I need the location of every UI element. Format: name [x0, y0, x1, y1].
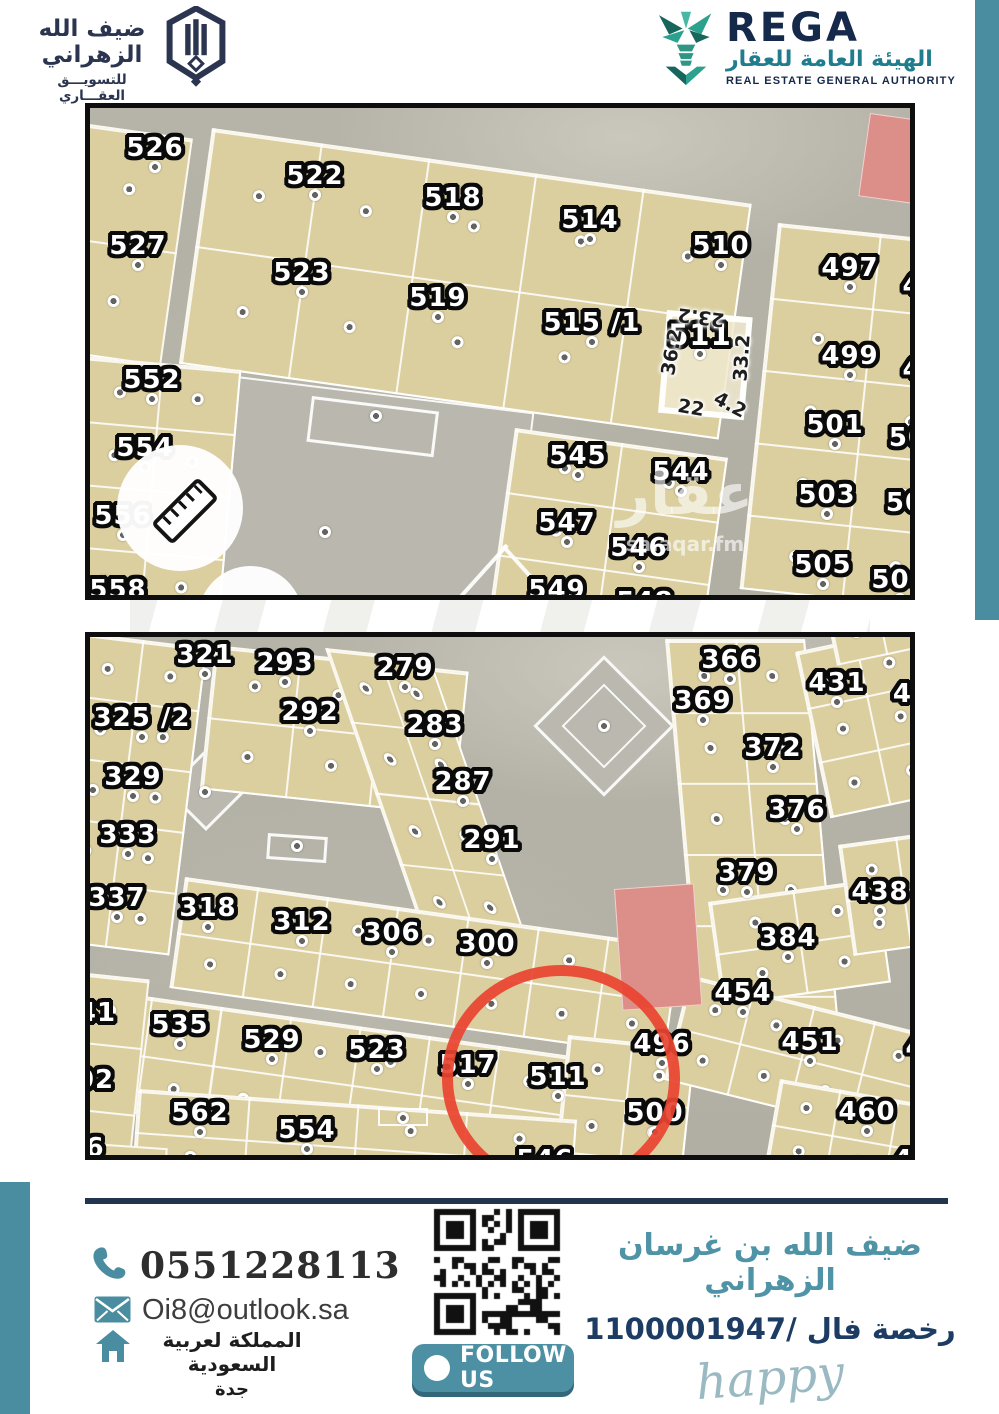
- plot-label: 4: [902, 271, 915, 301]
- plot-dot: [696, 1053, 711, 1068]
- plot-label: 41: [85, 998, 116, 1028]
- plot-dot: [891, 1049, 906, 1064]
- plot-label: 523: [273, 258, 330, 288]
- email-icon: [94, 1296, 131, 1328]
- plot-dot: [766, 670, 779, 682]
- plot-dot: [872, 916, 886, 930]
- plot-dot: [191, 393, 204, 406]
- plot-label: 514: [561, 205, 618, 235]
- plot-dot: [894, 709, 908, 723]
- plot-label: 505: [794, 550, 851, 580]
- plot-dot: [422, 934, 436, 948]
- plot-dot: [291, 840, 303, 852]
- map-2: 321293279366325 /22922833694314332928737…: [85, 632, 915, 1160]
- agent-signature: happy: [694, 1345, 846, 1411]
- plot-label: 287: [434, 767, 491, 797]
- plot-label: 460: [838, 1097, 895, 1127]
- plot-dot: [115, 1159, 128, 1160]
- address-city: جدة: [122, 1379, 342, 1400]
- plot-label: 518: [424, 183, 481, 213]
- left-accent-bar: [0, 1182, 30, 1414]
- rega-logo: REGA الهيئة العامة للعقار REAL ESTATE GE…: [726, 8, 956, 87]
- plot-dot: [414, 987, 428, 1001]
- plot-label: 554: [278, 1115, 335, 1145]
- plot-dot: [792, 1144, 806, 1158]
- plot-label: 321: [176, 640, 233, 670]
- plot-label: 318: [179, 893, 236, 923]
- phone-icon: [92, 1246, 126, 1285]
- rega-palm-icon: [652, 10, 720, 91]
- plot-dot: [184, 1150, 197, 1160]
- plot-label: 384: [759, 923, 816, 953]
- plot-dot: [357, 682, 373, 696]
- plot-label: 283: [406, 710, 463, 740]
- plot-label: 293: [256, 648, 313, 678]
- plot-label: 279: [376, 653, 433, 683]
- address-block: المملكة لعربية السعودية جدة: [122, 1328, 342, 1400]
- dimension-label: 22: [676, 395, 706, 421]
- plot-label: 325 /2: [94, 703, 191, 733]
- plot-label: 547: [538, 508, 595, 538]
- plot-label: 291: [463, 825, 520, 855]
- plot-dot: [370, 410, 382, 422]
- follow-us-label: FOLLOW US: [460, 1343, 574, 1393]
- plot-dot: [757, 1069, 772, 1084]
- plot-label: 50: [889, 423, 915, 453]
- company-logo: ضيف الله الزهراني للتسويـــق العقـــاري: [22, 16, 162, 104]
- plot-label: 333: [99, 820, 156, 850]
- plot-label: 451: [781, 1027, 838, 1057]
- plot-label: 4: [902, 355, 915, 385]
- agent-name: ضيف الله بن غرسان الزهراني: [580, 1228, 960, 1298]
- plot-dot: [86, 783, 99, 796]
- aqar-watermark: عقار sa.aqar.fm: [610, 460, 760, 556]
- plot-dot: [404, 1124, 417, 1137]
- plot-dot: [241, 750, 254, 763]
- plot-label: 431: [808, 668, 865, 698]
- plot-dot: [836, 722, 850, 736]
- plot-dot: [248, 680, 261, 693]
- qr-code: [430, 1205, 564, 1339]
- plot-dot: [274, 967, 288, 981]
- plot-dot: [148, 791, 161, 804]
- plot-dot: [800, 1101, 814, 1115]
- plot-label: 558: [89, 575, 146, 600]
- plot-dot: [292, 1157, 305, 1160]
- company-emblem-icon: [160, 6, 232, 95]
- footer-divider: [85, 1198, 948, 1204]
- plot-label: 329: [104, 762, 161, 792]
- plot-label: 510: [692, 231, 749, 261]
- plot-label: 45: [894, 1145, 915, 1160]
- plot-dot: [314, 1045, 328, 1059]
- plot-label: 527: [109, 231, 166, 261]
- plot-dot: [236, 305, 250, 319]
- plot-label: 515 /1: [544, 308, 641, 338]
- plot-label: 337: [88, 883, 145, 913]
- right-accent-bar: [975, 0, 999, 620]
- dimension-label: 33.2: [729, 334, 754, 382]
- plot-dot: [704, 742, 717, 754]
- plot-dot: [199, 786, 211, 798]
- plot-label: 499: [821, 341, 878, 371]
- plot-dot: [467, 219, 481, 233]
- plot-dot: [133, 912, 146, 925]
- plot-label: 526: [126, 133, 183, 163]
- plot-dot: [204, 958, 218, 972]
- plot-dot: [850, 632, 864, 639]
- plot-dot: [324, 759, 337, 772]
- email-address: Oi8@outlook.sa: [142, 1294, 349, 1327]
- plot-label: 504: [871, 565, 915, 595]
- plot-label: 529: [243, 1025, 300, 1055]
- plot-label: 372: [744, 733, 801, 763]
- plot-label: 522: [286, 161, 343, 191]
- plot-dot: [175, 581, 188, 594]
- plot-label: 535: [151, 1010, 208, 1040]
- company-logo-title: ضيف الله الزهراني: [22, 16, 162, 68]
- plot-label: 503: [798, 480, 855, 510]
- plot-dot: [848, 776, 862, 790]
- plot-dot: [382, 753, 398, 767]
- plot-label: 548: [616, 587, 673, 600]
- plot-label: 562: [171, 1098, 228, 1128]
- plot-label: 306: [363, 918, 420, 948]
- plot-dot: [598, 720, 610, 732]
- plot-label: 02: [85, 1065, 114, 1095]
- plot-label: 438: [851, 877, 908, 907]
- plot-dot: [252, 189, 266, 203]
- plot-dot: [85, 844, 92, 857]
- aqar-watermark-site: sa.aqar.fm: [610, 532, 760, 556]
- plot-dot: [882, 655, 896, 669]
- plot-label: 292: [281, 697, 338, 727]
- plot-dot: [319, 526, 331, 538]
- plot-dot: [905, 763, 915, 777]
- rega-name-arabic: الهيئة العامة للعقار: [726, 48, 956, 72]
- follow-us-bullet-icon: [424, 1355, 450, 1381]
- plot-dot: [710, 813, 723, 825]
- agent-license: رخصة فال /1100001947: [580, 1312, 960, 1346]
- plot-dot: [107, 294, 121, 308]
- plot-label: 501: [806, 410, 863, 440]
- plot-label: 369: [674, 686, 731, 716]
- plot-label: 4: [905, 1033, 915, 1063]
- plot-dot: [141, 852, 154, 865]
- follow-us-button[interactable]: FOLLOW US: [412, 1344, 574, 1392]
- plot-label: 366: [701, 645, 758, 675]
- plot-label: 552: [123, 365, 180, 395]
- plot-label: 549: [528, 575, 585, 600]
- plot-dot: [850, 1155, 864, 1160]
- plot-dot: [450, 335, 464, 349]
- plot-label: 312: [273, 907, 330, 937]
- plot-dot: [830, 905, 844, 919]
- phone-number: 0551228113: [140, 1245, 401, 1287]
- plot-dot: [558, 350, 572, 364]
- plot-dot: [163, 669, 176, 682]
- plot-label: 523: [348, 1035, 405, 1065]
- aqar-watermark-word: عقار: [610, 460, 760, 530]
- agent-block: ضيف الله بن غرسان الزهراني رخصة فال /110…: [580, 1228, 960, 1406]
- plot-label: 497: [821, 253, 878, 283]
- plot-dot: [397, 1112, 409, 1124]
- plot-dot: [865, 863, 879, 877]
- plot-dot: [481, 900, 497, 914]
- plot-dot: [912, 343, 915, 356]
- plot-label: 545: [549, 441, 606, 471]
- plot-label: 379: [718, 858, 775, 888]
- plot-label: 300: [458, 929, 515, 959]
- plot-label: 50: [886, 488, 915, 518]
- plot-label: 6: [85, 1133, 104, 1160]
- plot-dot: [123, 182, 137, 196]
- map-1: عقار sa.aqar.fm 526522518514510497527523…: [85, 103, 915, 600]
- plot-dot: [101, 662, 114, 675]
- address-country: المملكة لعربية السعودية: [122, 1328, 342, 1376]
- rega-name-english: REAL ESTATE GENERAL AUTHORITY: [726, 75, 956, 87]
- plot-dot: [360, 204, 374, 218]
- plot-label: 454: [714, 978, 771, 1008]
- map1-red-plot: [858, 113, 915, 205]
- plot-label: 519: [409, 283, 466, 313]
- plot-dot: [837, 955, 851, 969]
- plot-dot: [406, 824, 422, 838]
- plot-dot: [344, 977, 358, 991]
- plot-dot: [431, 895, 447, 909]
- plot-label: 43: [893, 679, 915, 709]
- plot-dot: [343, 320, 357, 334]
- company-logo-subtitle: للتسويـــق العقـــاري: [22, 72, 162, 104]
- plot-label: 376: [768, 795, 825, 825]
- rega-wordmark: REGA: [726, 8, 956, 48]
